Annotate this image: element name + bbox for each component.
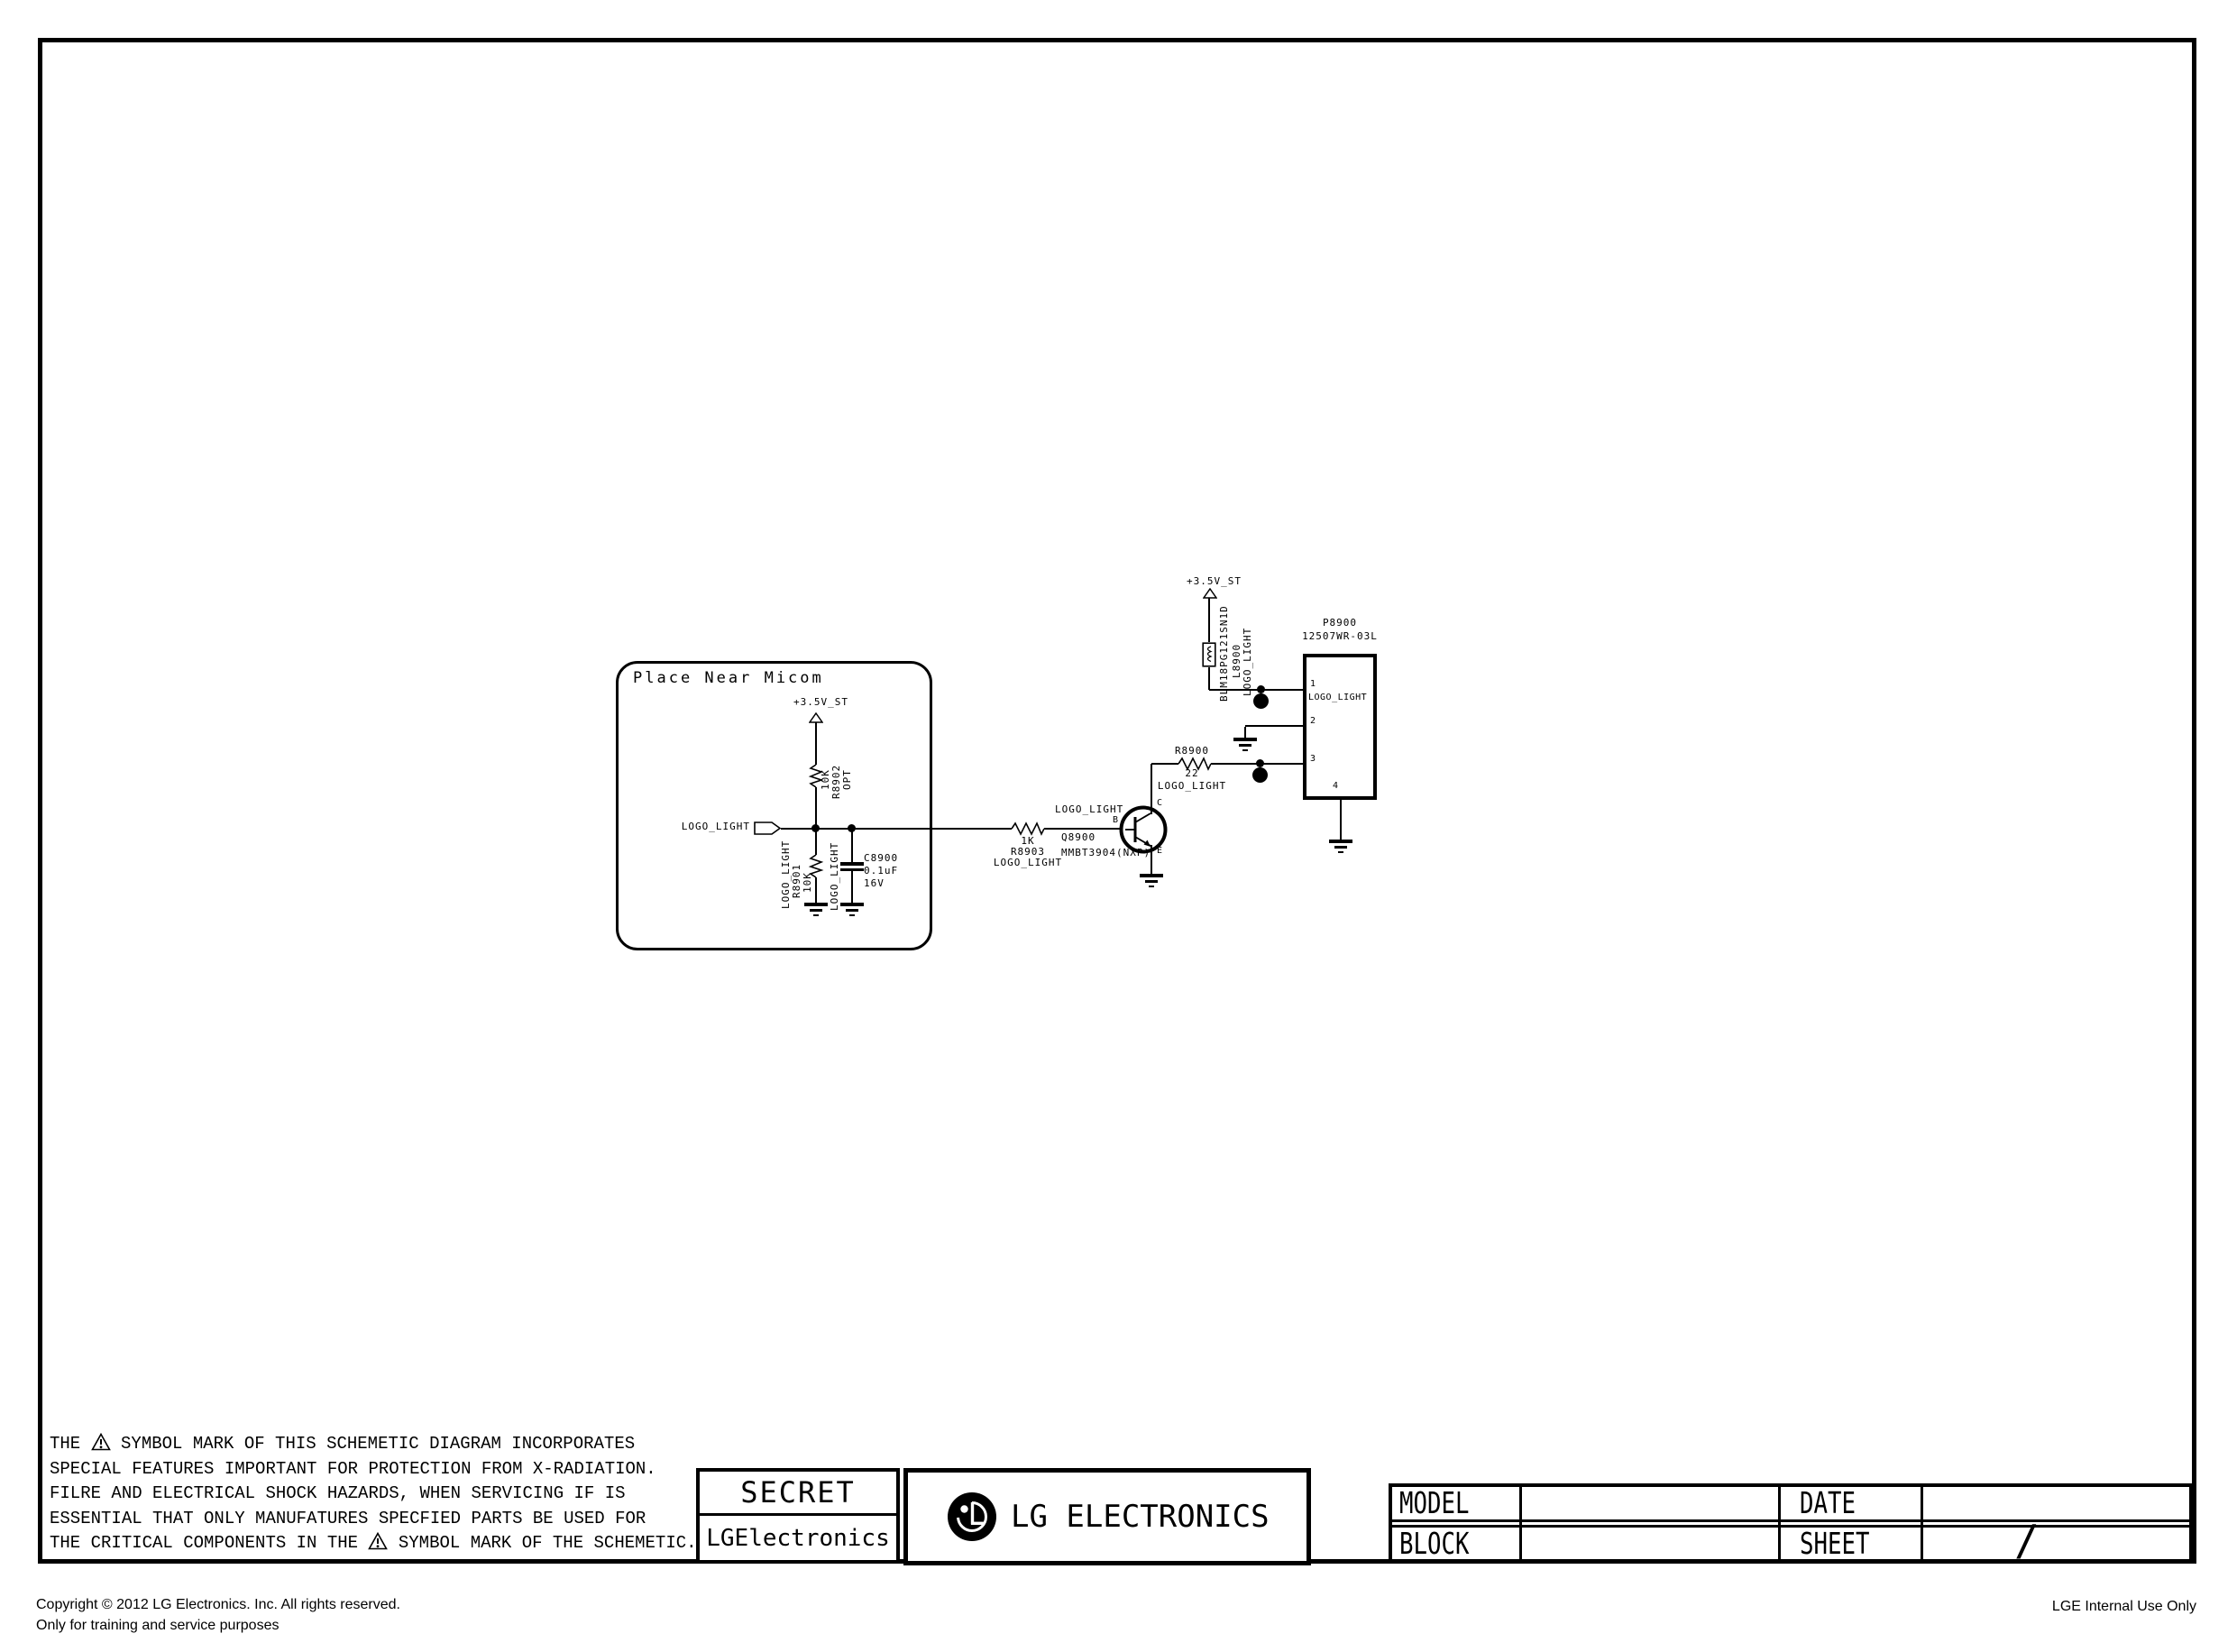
date-value-cell (1923, 1487, 2189, 1519)
wire (1208, 667, 1210, 690)
warning-line-4: ESSENTIAL THAT ONLY MANUFATURES SPECFIED… (50, 1507, 697, 1532)
base-net-label: LOGO_LIGHT (1055, 804, 1123, 815)
lg-electronics-wordmark: LG ELECTRONICS (1011, 1499, 1270, 1535)
r8901-value-label: 10K (802, 872, 813, 893)
ground-icon (813, 914, 819, 916)
junction-dot-large (1252, 767, 1268, 783)
warning-text: SYMBOL MARK OF THIS SCHEMETIC DIAGRAM IN… (121, 1434, 635, 1454)
ground-icon (1338, 851, 1343, 853)
l8900-part-label: BLM18PG121SN1D (1219, 605, 1230, 702)
q8900-pin-e-label: E (1157, 846, 1163, 857)
q8900-ref-label: Q8900 (1061, 832, 1096, 843)
micom-input-net-label: LOGO_LIGHT (674, 821, 750, 832)
q8900-pin-c-label: C (1157, 798, 1163, 809)
resistor-r8903 (1012, 821, 1044, 836)
ground-icon (849, 914, 855, 916)
c8900-ref-label: C8900 (864, 853, 898, 864)
r8902-opt-label: OPT (842, 769, 853, 790)
r8903-net-label: LOGO_LIGHT (983, 858, 1073, 868)
ground-icon (846, 909, 858, 912)
ground-icon (840, 903, 864, 906)
warning-text: SYMBOL MARK OF THE SCHEMETIC. (399, 1533, 697, 1553)
company-label: LGElectronics (700, 1516, 896, 1560)
schematic-page: Place Near Micom +3.5V_ST 10K R8902 OPT … (0, 0, 2237, 1652)
wire (851, 871, 853, 903)
ground-icon (1145, 880, 1158, 883)
q8900-part-label: MMBT3904(NXP) (1061, 848, 1151, 858)
p8900-pin4-label: 4 (1333, 781, 1339, 792)
ground-icon (1149, 886, 1154, 887)
capacitor-c8900-plate (840, 862, 864, 866)
title-table: MODEL BLOCK DATE SHEET / (1389, 1483, 2193, 1564)
wire (1340, 800, 1342, 840)
warning-triangle-icon (91, 1433, 111, 1451)
training-line: Only for training and service purposes (36, 1615, 400, 1636)
ground-icon (804, 903, 828, 906)
warning-text: THE CRITICAL COMPONENTS IN THE (50, 1533, 358, 1553)
wire (1151, 845, 1152, 874)
ground-icon (1242, 749, 1248, 751)
wire (1244, 727, 1246, 738)
c8900-volt-label: 16V (864, 878, 885, 889)
model-label: MODEL (1399, 1486, 1469, 1520)
junction-dot (1256, 759, 1264, 767)
ground-icon (1233, 738, 1257, 741)
micom-box-title: Place Near Micom (633, 669, 824, 687)
ground-icon (1140, 874, 1163, 877)
p8900-pin2-label: 2 (1310, 716, 1316, 727)
wire-logo-light (1044, 828, 1125, 830)
c8900-net-label: LOGO_LIGHT (830, 842, 840, 911)
sheet-value-cell: / (2014, 1519, 2040, 1561)
p8900-part-label: 12507WR-03L (1295, 631, 1385, 642)
c8900-value-label: 0.1uF (864, 866, 898, 876)
model-value-cell (1522, 1487, 1778, 1519)
net-tag-icon (754, 821, 782, 836)
warning-line-3: FILRE AND ELECTRICAL SHOCK HAZARDS, WHEN… (50, 1482, 697, 1507)
table-divider (1392, 1525, 2189, 1528)
wire (1208, 598, 1210, 642)
lg-electronics-logo-box: LG ELECTRONICS (903, 1468, 1311, 1565)
r8900-ref-label: R8900 (1147, 746, 1237, 757)
block-label: BLOCK (1399, 1527, 1469, 1561)
ground-icon (1329, 840, 1352, 843)
wire (815, 787, 817, 829)
l8900-net-label: LOGO_LIGHT (1242, 628, 1253, 696)
warning-line-1: THE SYMBOL MARK OF THIS SCHEMETIC DIAGRA… (50, 1432, 697, 1457)
wire (815, 722, 817, 765)
wire (815, 830, 817, 855)
p8900-pin1-label: 1 (1310, 679, 1316, 690)
wire (815, 877, 817, 903)
page-border (38, 38, 2196, 1564)
p8900-pin3-label: 3 (1310, 754, 1316, 765)
power-triangle-icon (1203, 588, 1217, 599)
r8900-value-label: 22 (1147, 768, 1237, 779)
x-radiation-warning-note: THE SYMBOL MARK OF THIS SCHEMETIC DIAGRA… (50, 1432, 697, 1556)
p8900-ref-label: P8900 (1295, 618, 1385, 629)
secret-stamp-box: SECRET LGElectronics (696, 1468, 900, 1564)
ground-icon (1239, 744, 1251, 747)
q8900-pin-b-label: B (1113, 815, 1119, 826)
warning-line-2: SPECIAL FEATURES IMPORTANT FOR PROTECTIO… (50, 1457, 697, 1482)
date-label: DATE (1800, 1486, 1856, 1520)
ground-icon (1334, 846, 1347, 849)
ground-icon (810, 909, 822, 912)
warning-triangle-icon (368, 1532, 388, 1550)
secret-label: SECRET (700, 1472, 896, 1516)
r8900-net-label: LOGO_LIGHT (1147, 781, 1237, 792)
l8900-power-label: +3.5V_ST (1187, 576, 1242, 587)
copyright-line: Copyright © 2012 LG Electronics. Inc. Al… (36, 1594, 400, 1615)
sheet-label: SHEET (1800, 1527, 1869, 1561)
footer-copyright: Copyright © 2012 LG Electronics. Inc. Al… (36, 1594, 400, 1636)
table-divider (1778, 1487, 1781, 1560)
connector-p8900 (1303, 654, 1377, 800)
place-near-micom-box (616, 661, 932, 950)
junction-dot-large (1253, 693, 1269, 709)
warning-line-5: THE CRITICAL COMPONENTS IN THE SYMBOL MA… (50, 1531, 697, 1556)
warning-text: THE (50, 1434, 80, 1454)
wire (851, 830, 853, 862)
footer-internal-use: LGE Internal Use Only (1921, 1596, 2196, 1617)
wire (1151, 763, 1178, 765)
ferrite-bead-l8900 (1202, 642, 1216, 667)
p8900-pin1-net-label: LOGO_LIGHT (1308, 693, 1367, 703)
table-divider (1392, 1519, 2189, 1522)
lg-logo-icon (946, 1491, 998, 1543)
junction-dot (1257, 685, 1265, 693)
block-value-cell (1522, 1528, 1778, 1560)
wire (1245, 725, 1303, 727)
micom-power-label: +3.5V_ST (793, 697, 848, 708)
